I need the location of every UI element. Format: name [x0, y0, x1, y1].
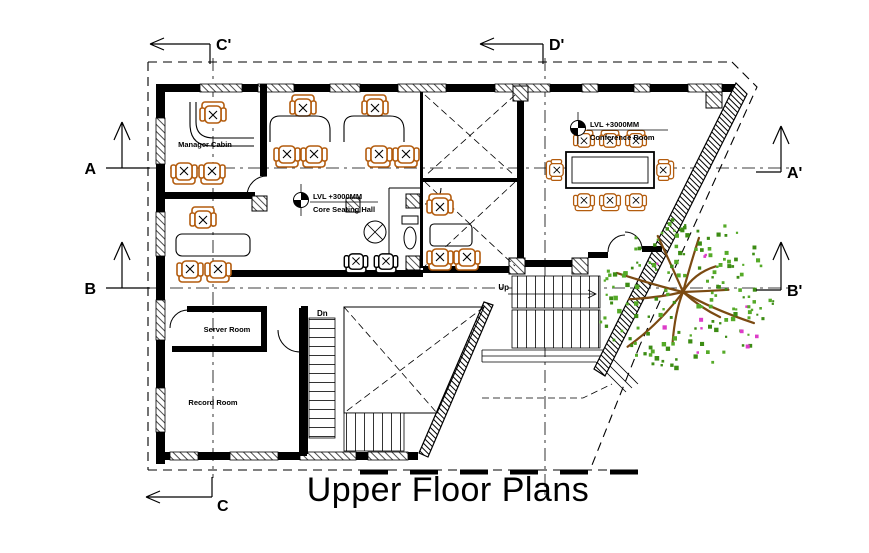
stair-up-label: Up — [498, 283, 509, 292]
marker-a: A — [84, 122, 150, 178]
column — [509, 258, 525, 274]
svg-text:C: C — [217, 498, 229, 515]
marker-c-prime: C' — [150, 37, 231, 64]
column — [406, 194, 420, 208]
server-room-top-wall — [187, 306, 267, 312]
page-title: Upper Floor Plans — [307, 471, 590, 509]
manager-cabin-bottom-wall — [165, 192, 255, 199]
svg-text:A: A — [84, 161, 96, 178]
svg-text:C': C' — [216, 37, 231, 54]
stair-hall-left-wall — [301, 306, 308, 454]
workstation-cluster-2 — [344, 95, 419, 167]
server-room-label: Server Room — [204, 325, 251, 334]
server-room-door — [170, 310, 188, 328]
record-room-label: Record Room — [188, 398, 238, 407]
conference-furniture — [546, 130, 673, 210]
annotation-core-hall: LVL +3000MM Core Seating Hall — [294, 184, 379, 216]
column — [706, 92, 722, 108]
marker-c: C — [146, 477, 229, 515]
workstation-cluster-1 — [270, 95, 330, 167]
manager-cabin-right-wall — [260, 84, 267, 176]
marker-b: B — [84, 242, 150, 298]
server-room-bottom-wall — [172, 346, 267, 352]
core-hall-name: Core Seating Hall — [313, 205, 375, 214]
column — [406, 256, 420, 270]
core-hall-level: LVL +3000MM — [313, 192, 362, 201]
column — [572, 258, 588, 274]
toilet-fixtures — [364, 216, 418, 249]
conference-left-wall — [517, 92, 524, 264]
floor-plan-canvas: Dn Up — [0, 0, 869, 553]
stairs: Dn Up — [309, 276, 600, 451]
waiting-chairs — [344, 254, 397, 273]
top-wall — [156, 84, 738, 92]
stair-up-landing — [512, 310, 600, 348]
svg-text:D': D' — [549, 37, 564, 54]
stair-down-bottom-run — [344, 413, 404, 451]
server-room-right-wall — [261, 306, 267, 352]
svg-text:A': A' — [787, 165, 802, 182]
atrium-partition — [421, 178, 517, 182]
conference-level: LVL +3000MM — [590, 120, 639, 129]
stair-up-run — [512, 276, 600, 308]
wc-bowl — [404, 227, 416, 249]
diagonal-wall-lower — [419, 302, 493, 457]
svg-text:B': B' — [787, 283, 802, 300]
stair-down-label: Dn — [317, 309, 328, 318]
manager-cabin-label: Manager Cabin — [178, 140, 232, 149]
marker-b-prime: B' — [756, 242, 802, 300]
tree — [599, 218, 774, 370]
record-room-door — [278, 330, 300, 352]
marker-d-prime: D' — [480, 37, 564, 64]
stair-down-run — [309, 318, 335, 438]
walls — [156, 83, 747, 464]
column — [252, 196, 267, 211]
workstation-cluster-3 — [427, 194, 480, 270]
floor-plan-page: Dn Up — [0, 0, 869, 553]
conference-name: Conference Room — [590, 133, 655, 142]
wc-tank — [402, 216, 418, 224]
column — [513, 86, 528, 101]
marker-a-prime: A' — [756, 126, 802, 182]
svg-text:B: B — [84, 281, 96, 298]
